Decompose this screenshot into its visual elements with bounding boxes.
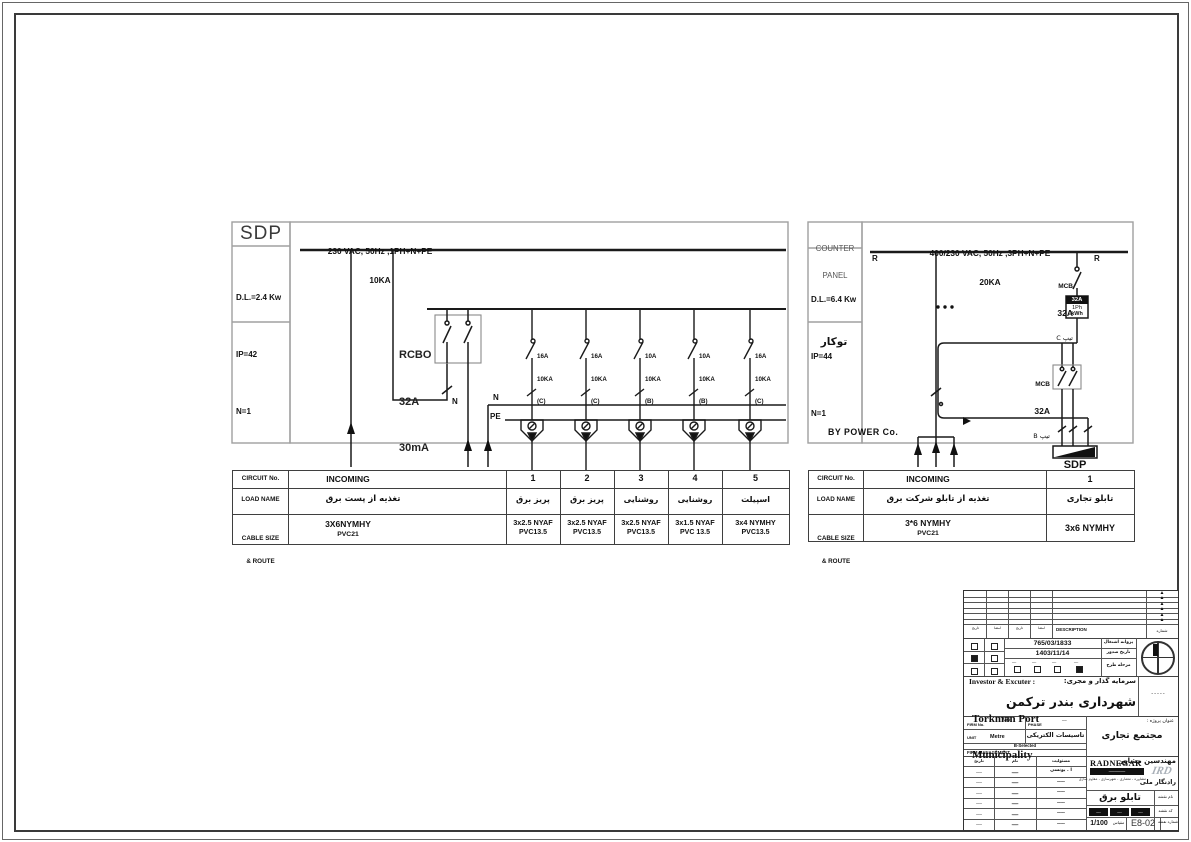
breaker2-ka: 10KA [591, 376, 607, 384]
sign-row: ـــــ [994, 770, 1036, 775]
breaker2-amp: 16A [591, 353, 607, 361]
counter-incoming-cable: 3*6 NYMHY [863, 519, 993, 528]
circuit-no-3: 3 [614, 474, 668, 484]
counter-incoming-load: تغذیه از تابلو شرکت برق [863, 495, 1013, 504]
circuit-cable-2: 3x2.5 NYAF [560, 519, 614, 527]
drawing-sheet-label: شماره نقشه [1160, 820, 1178, 824]
stage-checkbox-3 [1054, 666, 1061, 673]
circuit-load-1: پریز برق [506, 496, 560, 505]
neutral-label-2: N [493, 394, 499, 403]
rcbo-label-2: 32A [399, 395, 431, 411]
circuit-load-5: اسپیلت [722, 496, 789, 505]
sign-row: ـــــ [994, 791, 1036, 796]
circuit-cable-1: 3x2.5 NYAF [506, 519, 560, 527]
counter-mount-label: توکار [810, 337, 858, 349]
incoming-route: PVC21 [288, 531, 408, 538]
sign-row: ـــــ [964, 780, 994, 784]
counter-col-header-cable-2: & ROUTE [809, 558, 863, 566]
sdp-panel-title: SDP [232, 224, 290, 245]
consultant-services: مشاوره ، معماری ، شهرسازی ، مقاوم سازی [1088, 778, 1146, 782]
circuit-route-1: PVC13.5 [506, 529, 560, 537]
drawing-scale-label: مقیاس [1111, 821, 1126, 825]
breaker4-amp: 10A [699, 353, 715, 361]
counter-spec-dl: D.L.=6.4 Kw [811, 290, 856, 309]
breaker1-curve: (C) [537, 398, 553, 406]
sdp-spec-dl: D.L.=2.4 Kw [236, 288, 281, 307]
breaker1-amp: 16A [537, 353, 553, 361]
breaker5-ka: 10KA [755, 376, 771, 384]
breaker3-ka: 10KA [645, 376, 661, 384]
consultant-bar: ــــــــــــــــ [1090, 768, 1144, 775]
circuit-cable-3: 3x2.5 NYAF [614, 519, 668, 527]
approval-checkbox-2 [991, 643, 998, 650]
counter-circuit-table: CIRCUIT No. INCOMING 1 LOAD NAME تغذیه ا… [808, 470, 1135, 542]
counter-incoming-route: PVC21 [863, 530, 993, 537]
counter-spec-ip: IP=44 [811, 347, 856, 366]
breaker2-curve: (C) [591, 398, 607, 406]
drawing-name-label: نام نقشه [1155, 795, 1176, 799]
drawing-sheet-number: E8-02 [1126, 819, 1160, 829]
drawing-sheet: SDP D.L.=2.4 Kw IP=42 N=1 230 VAC, 50Hz … [0, 0, 1191, 842]
by-power-label: BY POWER Co. [828, 428, 898, 438]
counter-circuit-load-1: تابلو تجاری [1046, 495, 1134, 504]
sdp-circuit-table: CIRCUIT No. INCOMING 1 2 3 4 5 LOAD NAME… [232, 470, 790, 545]
sign-row: ـــــ [964, 812, 994, 816]
approval-checkbox-6 [991, 668, 998, 675]
breaker5-amp: 16A [755, 353, 771, 361]
drawing-code-seg-2: ـــــ [1110, 808, 1129, 816]
sdp-bus-ka: 10KA [290, 276, 470, 286]
drawing-code-seg-1: ـــــ [1089, 808, 1108, 816]
mcb-bottom-amp: 32A [1018, 407, 1050, 416]
drawing-code-seg-3: ـــــ [1131, 808, 1150, 816]
north-arrow-fill [1153, 644, 1158, 656]
phase-r-right: R [1094, 255, 1100, 264]
breaker1-ka: 10KA [537, 376, 553, 384]
approval-checkbox-1 [971, 643, 978, 650]
circuit-no-2: 2 [560, 474, 614, 484]
mcb-bottom-name: MCB [1018, 381, 1050, 390]
project-title-label: عنوان پروژه : [1088, 719, 1174, 724]
stage-option-label-2: ــــ [1032, 661, 1036, 665]
sdp-spec-ip: IP=42 [236, 345, 281, 364]
circuit-route-2: PVC13.5 [560, 529, 614, 537]
sign-row: ـــــ [1036, 822, 1086, 827]
stage-checkbox-1 [1014, 666, 1021, 673]
circuit-cable-4: 3x1.5 NYAF [668, 519, 722, 527]
circuit-no-1: 1 [506, 474, 560, 484]
rcbo-label-1: RCBO [399, 348, 431, 364]
discipline-label: تاسیسات الکتریکی [1025, 733, 1086, 740]
circuit-route-5: PVC13.5 [722, 529, 789, 537]
phase-label: PHASE [1028, 723, 1042, 727]
col-header-cable-1: CABLE SIZE [233, 535, 288, 543]
title-block: تاریخ امضا تاریخ امضا DESCRIPTION شماره … [963, 590, 1179, 831]
circuit-load-2: پریز برق [560, 496, 614, 505]
investor-name-fa: شهرداری بندر ترکمن [1039, 695, 1136, 709]
sign-row: ـــــ [1036, 811, 1086, 816]
sign-row: ا . یونسی [1036, 769, 1086, 774]
counter-incoming-no: INCOMING [863, 475, 993, 484]
rcbo-label-3: 30mA [399, 441, 431, 457]
breaker5-curve: (C) [755, 398, 771, 406]
approval-checkbox-4 [991, 655, 998, 662]
rev-col-label-3: تاریخ [1009, 627, 1030, 631]
col-header-cable-2: & ROUTE [233, 558, 288, 566]
meter-kwh: kWh [1066, 311, 1088, 317]
counter-bus-voltage: 400/230 VAC, 50Hz ,3PH+N+PE [880, 249, 1100, 259]
col-header-circuit: CIRCUIT No. [233, 476, 288, 483]
license-date: 1403/11/14 [1004, 650, 1101, 657]
firm-no-value: 765 [1002, 718, 1010, 724]
license-label: پروانه اشتغال [1103, 641, 1134, 646]
license-date-label: تاریخ صدور [1103, 651, 1134, 656]
sign-row: ـــــ [994, 812, 1036, 817]
drawing-scale: 1/100 [1086, 820, 1112, 828]
col-header-load: LOAD NAME [233, 497, 288, 504]
circuit-load-3: روشنایی [614, 496, 668, 505]
stage-option-label-3: ــــ [1052, 661, 1056, 665]
circuit-no-4: 4 [668, 474, 722, 484]
meter-amp: 32A [1066, 297, 1088, 303]
drawing-code-label: کد نقشه [1155, 809, 1176, 813]
rev-no-label: شماره [1146, 629, 1178, 633]
mcb-top-name: MCB [1035, 283, 1073, 292]
mcb-bottom-tip: تیپ B [1018, 432, 1050, 441]
stage-option-label-4: ــــ [1074, 661, 1078, 665]
breaker3-amp: 10A [645, 353, 661, 361]
incoming-no: INCOMING [288, 475, 408, 484]
rev-col-label-1: تاریخ [965, 627, 986, 631]
breaker4-ka: 10KA [699, 376, 715, 384]
mcb-top-tip: تیپ C [1035, 334, 1073, 343]
stage-option-label-1: ــــ [1012, 661, 1016, 665]
project-title: مجتمع تجاری [1086, 731, 1178, 741]
sign-row: ـــــ [1036, 801, 1086, 806]
sign-row: ـــــ [1036, 790, 1086, 795]
sign-row: ـــــ [994, 780, 1036, 785]
firm-management-label: FIRM MANAGEMENT [967, 751, 1010, 756]
circuit-route-3: PVC13.5 [614, 529, 668, 537]
breaker3-curve: (B) [645, 398, 661, 406]
sdp-spec-n: N=1 [236, 402, 281, 421]
counter-col-header-circuit: CIRCUIT No. [809, 476, 863, 483]
sign-header-name: نام [994, 759, 1036, 763]
pe-label: PE [490, 413, 501, 422]
counter-circuit-cable-1: 3x6 NYMHY [1046, 524, 1134, 534]
meter-phase: 1Ph [1066, 305, 1088, 311]
rev-col-label-2: امضا [987, 627, 1008, 631]
sign-row: ـــــ [964, 791, 994, 795]
investor-stamp-box: ـ ـ ـ ـ ـ [1140, 691, 1176, 697]
counter-spec-n: N=1 [811, 404, 856, 423]
rev-description-label: DESCRIPTION [1056, 628, 1087, 633]
sign-header-role: مسئولیت [1036, 759, 1086, 763]
sign-row: ـــــ [964, 801, 994, 805]
stage-label: مرحله طرح [1103, 664, 1134, 669]
neutral-label-1: N [452, 398, 458, 407]
counter-col-header-load: LOAD NAME [809, 497, 863, 504]
drawing-name: تابلو برق [1086, 793, 1154, 803]
stage-checkbox-2 [1034, 666, 1041, 673]
phase-r-left: R [872, 255, 878, 264]
incoming-load: تغذیه از پست برق [288, 495, 438, 504]
circuit-load-4: روشنایی [668, 496, 722, 505]
approval-checkbox-3-checked [971, 655, 978, 662]
circuit-route-4: PVC 13.5 [668, 529, 722, 537]
circuit-no-5: 5 [722, 474, 789, 484]
counter-col-header-cable-1: CABLE SIZE [809, 535, 863, 543]
sign-row: ـــــ [994, 822, 1036, 827]
sdp-bus-voltage: 230 VAC, 50Hz ,1PH+N+PE [290, 247, 470, 257]
sign-row: ـــــ [964, 770, 994, 774]
rev-col-label-4: امضا [1031, 627, 1052, 631]
incoming-cable: 3X6NYMHY [288, 520, 408, 529]
phase-value: ــــ [1062, 718, 1067, 722]
revision-markers: ▲▲▲▲▲▲ [1154, 591, 1170, 623]
breaker4-curve: (B) [699, 398, 715, 406]
sign-row: ـــــ [964, 822, 994, 826]
circuit-cable-5: 3x4 NYMHY [722, 519, 789, 527]
unit-value: Metre [990, 734, 1005, 740]
license-number: 765/03/1833 [1004, 640, 1101, 647]
counter-circuit-no-1: 1 [1046, 475, 1134, 485]
selected-label: B-Selected [964, 744, 1086, 749]
consultant-logo-mark: IRD [1151, 765, 1173, 777]
stage-checkbox-4-checked [1076, 666, 1083, 673]
investor-label-fa: سرمایه گذار و مجری: [1056, 678, 1136, 685]
sign-row: ـــــ [994, 801, 1036, 806]
investor-label-en: Investor & Excuter : [969, 678, 1035, 686]
firm-no-label: FIRM No. [967, 723, 984, 727]
approval-checkbox-5 [971, 668, 978, 675]
sign-header-date: تاریخ [964, 759, 994, 763]
unit-label: UNIT [967, 736, 976, 740]
